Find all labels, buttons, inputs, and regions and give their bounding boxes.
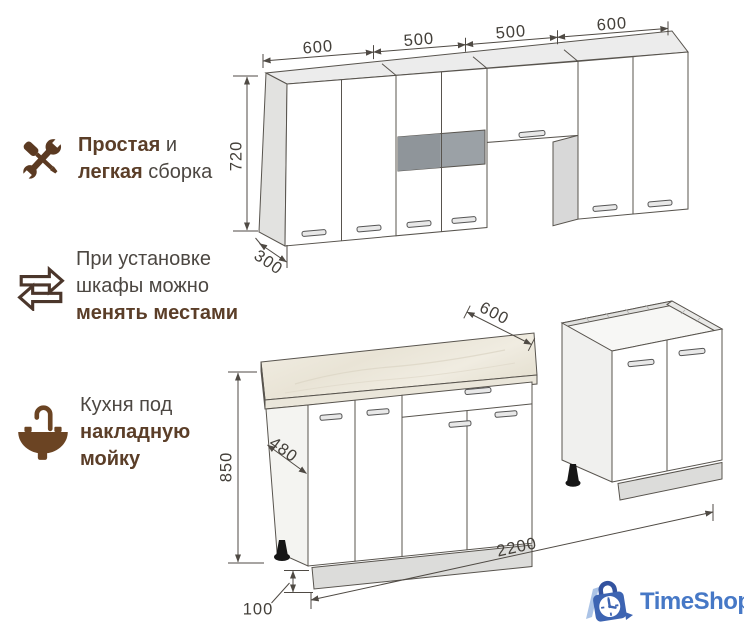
upper-left-side-panel: [259, 73, 287, 246]
base-left-side-panel: [266, 405, 308, 566]
dim-label-plinth-height: 100: [243, 600, 274, 618]
dim-label-upper-width-1: 600: [302, 37, 334, 57]
kitchen-set-diagram: Простая и легкая сборка При установке шк…: [0, 0, 744, 640]
upper-cabinet-500-hood: [487, 61, 578, 142]
dim-label-base-height: 850: [217, 452, 235, 483]
timeshop-logo: TimeShop: [584, 579, 744, 625]
dim-label-countertop-depth: 600: [477, 298, 512, 328]
sink-left-side-panel: [562, 323, 612, 482]
dim-label-upper-width-2: 500: [403, 30, 435, 50]
dim-label-upper-width-4: 600: [596, 14, 628, 34]
base-cabinets: [261, 333, 537, 589]
dim-base-height: 850: [217, 372, 264, 563]
logo-text: TimeShop: [640, 588, 744, 616]
dim-label-upper-depth: 300: [251, 246, 286, 278]
dim-plinth-height: 100: [243, 571, 313, 619]
cabinet-technical-drawing: 600 500 500 600 720 300: [0, 0, 744, 640]
dim-upper-height: 720: [227, 76, 258, 231]
upper-cabinet-600-left: [285, 75, 396, 246]
dim-label-upper-width-3: 500: [495, 22, 527, 42]
dim-label-upper-height: 720: [227, 141, 245, 172]
exposed-side-panel: [553, 135, 578, 225]
clock-bag-icon: [584, 579, 636, 625]
upper-cabinets: [259, 31, 688, 246]
sink-cabinet: [562, 301, 722, 500]
